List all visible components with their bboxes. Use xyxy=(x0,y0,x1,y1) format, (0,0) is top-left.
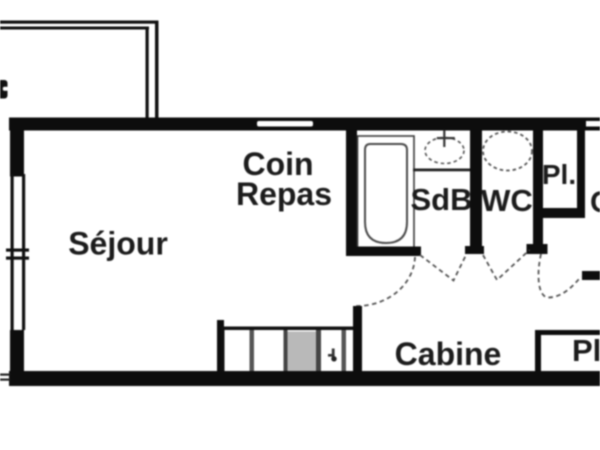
svg-text:Séjour: Séjour xyxy=(68,226,168,262)
svg-text:Pl.: Pl. xyxy=(542,159,576,190)
svg-text:C: C xyxy=(590,186,600,219)
svg-text:SdB: SdB xyxy=(411,182,473,217)
svg-text:WC: WC xyxy=(481,183,533,218)
svg-text:Pl.: Pl. xyxy=(572,333,600,368)
svg-text:Cabine: Cabine xyxy=(395,336,502,372)
svg-text:Repas: Repas xyxy=(236,176,332,212)
